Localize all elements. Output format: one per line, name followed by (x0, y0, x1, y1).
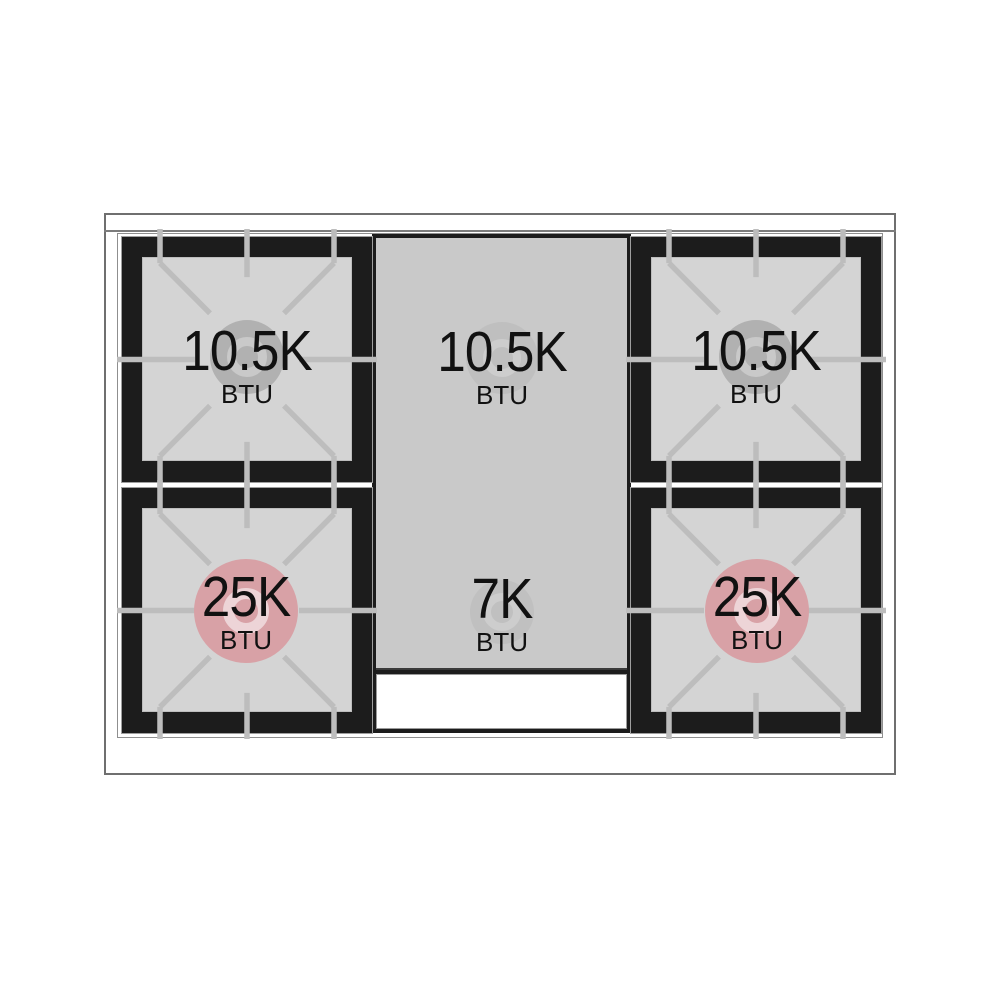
center-griddle-column: 10.5K BTU 7K BTU (372, 234, 631, 733)
cooktop-diagram: 10.5K BTU 7K BTU 10.5K BTU 10.5K B (0, 0, 1000, 1000)
btu-power-value: 7K (472, 575, 533, 624)
btu-power-value: 10.5K (691, 327, 821, 376)
burner-unit-top-right: 10.5K BTU (631, 237, 881, 482)
btu-unit: BTU (468, 629, 536, 655)
burner-label-top-right: 10.5K BTU (684, 327, 828, 407)
griddle-front-panel (376, 674, 627, 729)
burner-label-bottom-center: 7K BTU (468, 575, 536, 655)
backguard-trim-line (104, 230, 896, 232)
burner-label-bottom-left: 25K BTU (197, 573, 295, 653)
btu-unit: BTU (175, 381, 319, 407)
btu-unit: BTU (684, 381, 828, 407)
btu-power-value: 25K (713, 573, 802, 622)
burner-unit-top-left: 10.5K BTU (122, 237, 372, 482)
burner-label-bottom-right: 25K BTU (708, 573, 806, 653)
btu-unit: BTU (430, 382, 574, 408)
btu-power-value: 10.5K (182, 327, 312, 376)
btu-unit: BTU (197, 627, 295, 653)
burner-unit-bottom-left: 25K BTU (122, 488, 372, 733)
burner-unit-bottom-right: 25K BTU (631, 488, 881, 733)
btu-unit: BTU (708, 627, 806, 653)
btu-power-value: 25K (202, 573, 291, 622)
btu-power-value: 10.5K (437, 328, 567, 377)
burner-label-top-center: 10.5K BTU (430, 328, 574, 408)
burner-label-top-left: 10.5K BTU (175, 327, 319, 407)
